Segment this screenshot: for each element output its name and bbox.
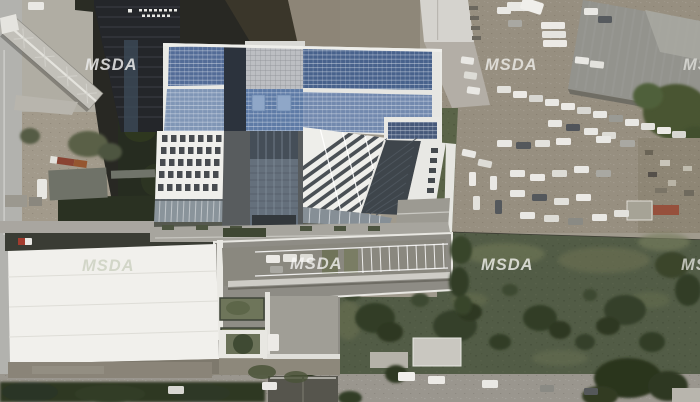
svg-text:MS: MS: [681, 256, 700, 274]
svg-text:MSDA: MSDA: [290, 255, 343, 273]
svg-text:MSDA: MSDA: [82, 257, 135, 275]
svg-text:MSDA: MSDA: [485, 56, 538, 74]
svg-text:MSDA: MSDA: [85, 56, 138, 74]
svg-text:MSDA: MSDA: [481, 256, 534, 274]
svg-text:MS: MS: [683, 56, 700, 74]
